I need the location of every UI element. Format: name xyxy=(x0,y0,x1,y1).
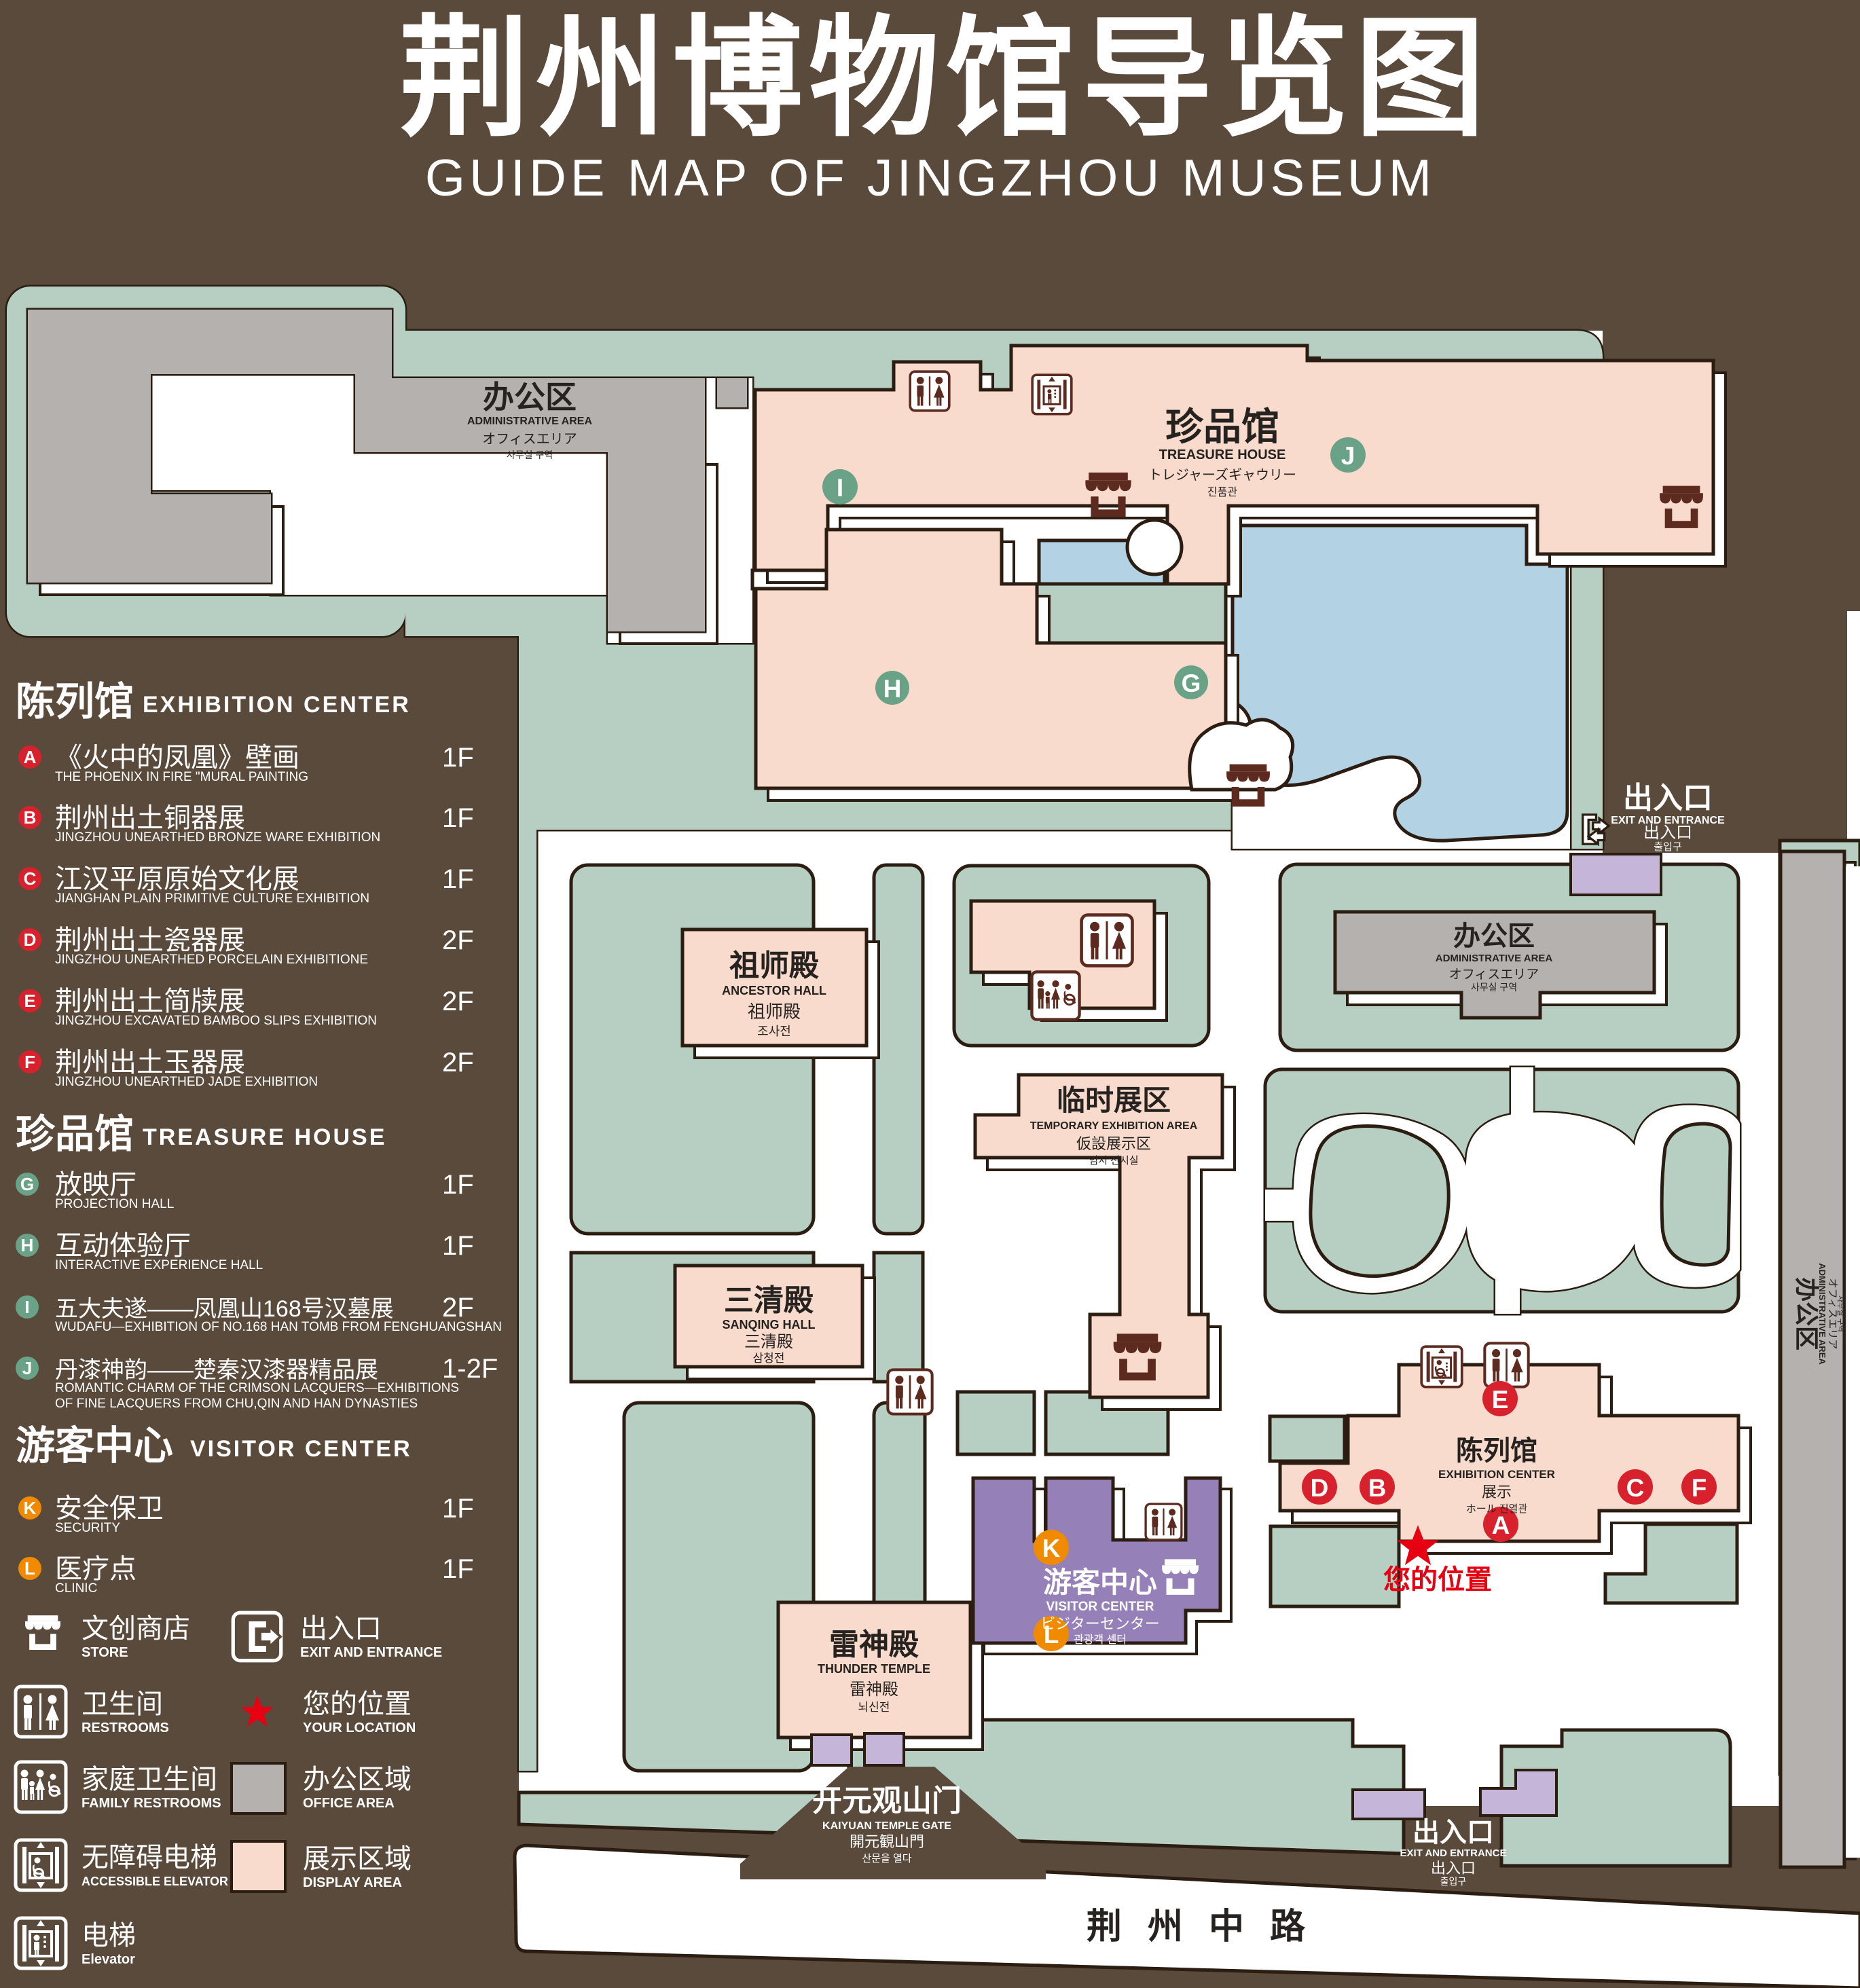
svg-text:EXHIBITION CENTER: EXHIBITION CENTER xyxy=(143,692,411,718)
svg-text:A: A xyxy=(1492,1511,1510,1539)
svg-text:J: J xyxy=(1341,442,1355,470)
svg-text:GUIDE MAP OF JINGZHOU MUSEUM: GUIDE MAP OF JINGZHOU MUSEUM xyxy=(425,149,1436,207)
svg-text:D: D xyxy=(24,929,37,950)
svg-text:雷神殿: 雷神殿 xyxy=(829,1628,919,1661)
svg-text:C: C xyxy=(1626,1474,1645,1502)
svg-text:电梯: 电梯 xyxy=(81,1921,136,1951)
svg-text:1F: 1F xyxy=(442,864,474,894)
svg-text:SANQING HALL: SANQING HALL xyxy=(723,1318,816,1331)
svg-text:办公区: 办公区 xyxy=(483,380,577,415)
svg-text:임시 전시실: 임시 전시실 xyxy=(1089,1155,1138,1166)
svg-text:THUNDER TEMPLE: THUNDER TEMPLE xyxy=(818,1662,930,1676)
svg-text:办公区: 办公区 xyxy=(1453,921,1535,951)
svg-text:EXIT AND ENTRANCE: EXIT AND ENTRANCE xyxy=(300,1645,442,1660)
svg-text:2F: 2F xyxy=(442,1293,474,1323)
svg-text:2F: 2F xyxy=(442,925,474,955)
svg-text:EXHIBITION CENTER: EXHIBITION CENTER xyxy=(1438,1468,1555,1481)
svg-text:出入口: 出入口 xyxy=(1623,781,1713,815)
svg-text:Elevator: Elevator xyxy=(81,1952,135,1967)
svg-text:丹漆神韵——楚秦汉漆器精品展: 丹漆神韵——楚秦汉漆器精品展 xyxy=(55,1357,378,1383)
svg-text:展示区域: 展示区域 xyxy=(303,1844,412,1874)
svg-text:陈列馆: 陈列馆 xyxy=(1456,1436,1537,1466)
svg-text:K: K xyxy=(24,1498,37,1518)
svg-text:JINGZHOU UNEARTHED JADE EXHIBI: JINGZHOU UNEARTHED JADE EXHIBITION xyxy=(55,1075,318,1089)
svg-text:KAIYUAN TEMPLE GATE: KAIYUAN TEMPLE GATE xyxy=(822,1820,951,1832)
svg-text:文创商店: 文创商店 xyxy=(81,1614,190,1644)
svg-text:安全保卫: 安全保卫 xyxy=(55,1494,164,1524)
svg-text:I: I xyxy=(24,1297,29,1317)
svg-text:A: A xyxy=(24,747,37,767)
svg-text:PROJECTION HALL: PROJECTION HALL xyxy=(55,1197,174,1211)
svg-text:F: F xyxy=(1692,1474,1707,1502)
svg-text:江汉平原原始文化展: 江汉平原原始文化展 xyxy=(55,864,299,894)
svg-text:ADMINISTRATIVE AREA: ADMINISTRATIVE AREA xyxy=(1436,953,1553,964)
svg-text:荆州出土玉器展: 荆州出土玉器展 xyxy=(55,1048,245,1078)
svg-text:展示: 展示 xyxy=(1482,1484,1512,1501)
svg-text:B: B xyxy=(24,807,37,828)
svg-text:ACCESSIBLE ELEVATOR: ACCESSIBLE ELEVATOR xyxy=(81,1875,228,1888)
svg-text:H: H xyxy=(883,675,902,703)
svg-text:출입구: 출입구 xyxy=(1440,1876,1467,1887)
svg-text:三清殿: 三清殿 xyxy=(724,1284,814,1317)
svg-text:H: H xyxy=(21,1235,34,1255)
svg-text:トレジャーズギャウリー: トレジャーズギャウリー xyxy=(1148,467,1296,483)
svg-text:祖师殿: 祖师殿 xyxy=(729,949,819,982)
svg-text:JINGZHOU UNEARTHED PORCELAIN E: JINGZHOU UNEARTHED PORCELAIN EXHIBITIONE xyxy=(55,953,368,967)
svg-text:사무실 구역: 사무실 구역 xyxy=(1471,982,1517,993)
svg-text:出入口: 出入口 xyxy=(1412,1818,1494,1847)
svg-text:卫生间: 卫生间 xyxy=(81,1689,163,1719)
svg-text:관광객 센터: 관광객 센터 xyxy=(1074,1634,1127,1646)
svg-text:《火中的凤凰》壁画: 《火中的凤凰》壁画 xyxy=(55,743,299,773)
svg-text:G: G xyxy=(20,1174,34,1194)
svg-text:出入口: 出入口 xyxy=(1431,1860,1476,1877)
svg-text:E: E xyxy=(1492,1386,1509,1414)
svg-text:L: L xyxy=(24,1558,35,1579)
svg-text:1-2F: 1-2F xyxy=(442,1354,498,1384)
svg-text:放映厅: 放映厅 xyxy=(55,1170,136,1200)
svg-text:游客中心: 游客中心 xyxy=(16,1424,173,1468)
svg-text:OF FINE LACQUERS FROM CHU,QIN: OF FINE LACQUERS FROM CHU,QIN AND HAN DY… xyxy=(55,1397,418,1411)
svg-text:TEMPORARY EXHIBITION AREA: TEMPORARY EXHIBITION AREA xyxy=(1030,1120,1198,1132)
svg-text:荆州出土瓷器展: 荆州出土瓷器展 xyxy=(55,925,245,955)
svg-text:办公区域: 办公区域 xyxy=(303,1765,412,1794)
svg-text:临时展区: 临时展区 xyxy=(1057,1084,1171,1116)
svg-text:C: C xyxy=(24,868,37,889)
svg-text:J: J xyxy=(22,1358,32,1378)
svg-text:1F: 1F xyxy=(442,1231,474,1261)
svg-text:RESTROOMS: RESTROOMS xyxy=(81,1720,169,1735)
svg-text:F: F xyxy=(24,1052,35,1072)
svg-text:B: B xyxy=(1368,1474,1387,1502)
svg-text:TREASURE HOUSE: TREASURE HOUSE xyxy=(1159,447,1286,462)
svg-text:뇌신전: 뇌신전 xyxy=(858,1701,890,1714)
svg-text:医疗点: 医疗点 xyxy=(55,1554,136,1584)
svg-text:珍品馆: 珍品馆 xyxy=(1165,405,1279,448)
svg-text:荆州博物馆导览图: 荆州博物馆导览图 xyxy=(399,5,1491,151)
svg-text:荆州出土简牍展: 荆州出土简牍展 xyxy=(55,987,245,1016)
svg-text:開元観山門: 開元観山門 xyxy=(850,1833,924,1850)
svg-text:2F: 2F xyxy=(442,987,474,1016)
svg-text:出入口: 出入口 xyxy=(1643,824,1692,842)
svg-text:JINGZHOU UNEARTHED BRONZE WARE: JINGZHOU UNEARTHED BRONZE WARE EXHIBITIO… xyxy=(55,830,380,845)
svg-text:산문을 열다: 산문을 열다 xyxy=(862,1853,911,1864)
svg-text:互动体验厅: 互动体验厅 xyxy=(55,1231,191,1261)
svg-text:INTERACTIVE EXPERIENCE HALL: INTERACTIVE EXPERIENCE HALL xyxy=(55,1258,263,1272)
svg-text:荆州中路: 荆州中路 xyxy=(1087,1907,1331,1947)
svg-text:CLINIC: CLINIC xyxy=(55,1581,97,1596)
svg-text:三清殿: 三清殿 xyxy=(744,1333,793,1351)
svg-text:开元观山门: 开元观山门 xyxy=(812,1784,962,1818)
svg-text:출입구: 출입구 xyxy=(1654,841,1681,853)
svg-text:1F: 1F xyxy=(442,1554,474,1584)
svg-text:ROMANTIC CHARM OF THE CRIMSON: ROMANTIC CHARM OF THE CRIMSON LACQUERS—E… xyxy=(55,1381,459,1395)
svg-text:仮設展示区: 仮設展示区 xyxy=(1076,1135,1151,1152)
svg-text:진품관: 진품관 xyxy=(1207,486,1237,498)
svg-text:E: E xyxy=(24,991,35,1011)
svg-text:I: I xyxy=(837,474,843,502)
svg-text:THE PHOENIX IN FIRE "MURAL PAI: THE PHOENIX IN FIRE "MURAL PAINTING xyxy=(55,770,308,784)
svg-text:1F: 1F xyxy=(442,1170,474,1200)
svg-text:办公区: 办公区 xyxy=(1793,1277,1821,1350)
svg-text:1F: 1F xyxy=(442,1494,474,1524)
svg-text:出入口: 出入口 xyxy=(300,1614,382,1644)
svg-text:2F: 2F xyxy=(442,1048,474,1078)
svg-text:荆州出土铜器展: 荆州出土铜器展 xyxy=(55,803,245,833)
svg-text:1F: 1F xyxy=(442,803,474,833)
svg-text:사무실 구역: 사무실 구역 xyxy=(1836,1295,1845,1332)
svg-text:ADMINISTRATIVE AREA: ADMINISTRATIVE AREA xyxy=(467,416,592,427)
svg-text:ANCESTOR HALL: ANCESTOR HALL xyxy=(722,984,826,997)
svg-text:K: K xyxy=(1042,1534,1061,1562)
svg-text:조사전: 조사전 xyxy=(757,1025,791,1038)
svg-text:雷神殿: 雷神殿 xyxy=(850,1680,898,1699)
svg-text:无障碍电梯: 无障碍电梯 xyxy=(81,1843,217,1873)
svg-text:ホール 진열관: ホール 진열관 xyxy=(1466,1503,1528,1515)
svg-text:VISITOR CENTER: VISITOR CENTER xyxy=(1046,1600,1154,1614)
svg-text:1F: 1F xyxy=(442,743,474,773)
svg-text:您的位置: 您的位置 xyxy=(303,1689,412,1719)
svg-text:SECURITY: SECURITY xyxy=(55,1521,120,1535)
svg-text:オフィスエリア: オフィスエリア xyxy=(1449,968,1539,982)
svg-text:ビジターセンター: ビジターセンター xyxy=(1040,1615,1160,1632)
svg-text:珍品馆: 珍品馆 xyxy=(16,1112,134,1156)
svg-text:DISPLAY AREA: DISPLAY AREA xyxy=(303,1875,402,1890)
svg-text:TREASURE HOUSE: TREASURE HOUSE xyxy=(143,1124,386,1150)
svg-text:G: G xyxy=(1182,669,1201,697)
svg-text:YOUR LOCATION: YOUR LOCATION xyxy=(303,1720,416,1735)
svg-text:WUDAFU—EXHIBITION OF NO.168 HA: WUDAFU—EXHIBITION OF NO.168 HAN TOMB FRO… xyxy=(55,1320,502,1334)
svg-text:オフィスエリア: オフィスエリア xyxy=(482,432,577,447)
svg-text:D: D xyxy=(1311,1474,1329,1502)
svg-text:ADMINISTRATIVE AREA: ADMINISTRATIVE AREA xyxy=(1817,1263,1827,1365)
svg-text:STORE: STORE xyxy=(81,1645,128,1660)
svg-text:삼청전: 삼청전 xyxy=(753,1352,785,1365)
svg-text:JINGZHOU EXCAVATED BAMBOO SLIP: JINGZHOU EXCAVATED BAMBOO SLIPS EXHIBITI… xyxy=(55,1014,377,1028)
svg-text:OFFICE AREA: OFFICE AREA xyxy=(303,1796,395,1811)
svg-text:JIANGHAN PLAIN PRIMITIVE CULTU: JIANGHAN PLAIN PRIMITIVE CULTURE EXHIBIT… xyxy=(55,891,369,906)
svg-text:家庭卫生间: 家庭卫生间 xyxy=(81,1765,217,1794)
svg-text:五大夫遂——凤凰山168号汉墓展: 五大夫遂——凤凰山168号汉墓展 xyxy=(55,1296,394,1322)
svg-text:陈列馆: 陈列馆 xyxy=(16,680,134,724)
svg-text:祖师殿: 祖师殿 xyxy=(748,1001,801,1022)
svg-text:FAMILY RESTROOMS: FAMILY RESTROOMS xyxy=(81,1796,221,1811)
svg-text:VISITOR CENTER: VISITOR CENTER xyxy=(190,1436,412,1462)
svg-text:사무실 구역: 사무실 구역 xyxy=(507,449,553,460)
svg-text:游客中心: 游客中心 xyxy=(1043,1566,1157,1598)
svg-text:您的位置: 您的位置 xyxy=(1383,1565,1492,1595)
svg-text:EXIT AND ENTRANCE: EXIT AND ENTRANCE xyxy=(1400,1847,1507,1859)
